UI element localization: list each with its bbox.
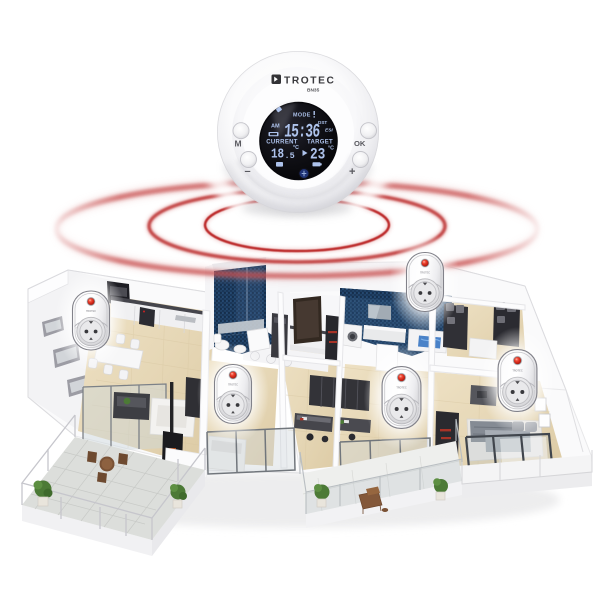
svg-text:OK: OK bbox=[354, 139, 366, 148]
svg-text:M: M bbox=[235, 139, 242, 149]
svg-text:BN35: BN35 bbox=[307, 88, 320, 94]
svg-text:ESI: ESI bbox=[325, 128, 333, 134]
svg-text:.5: .5 bbox=[285, 151, 295, 161]
svg-text:TARGET: TARGET bbox=[307, 139, 333, 145]
svg-text:MODE: MODE bbox=[293, 113, 311, 119]
svg-text:°C: °C bbox=[293, 145, 299, 151]
svg-text:°C: °C bbox=[328, 146, 334, 152]
svg-text:23: 23 bbox=[310, 146, 325, 164]
svg-text:AM: AM bbox=[271, 124, 280, 130]
svg-text:18: 18 bbox=[271, 146, 284, 162]
svg-text:TROTEC: TROTEC bbox=[284, 76, 335, 87]
svg-text:+: + bbox=[349, 166, 355, 178]
svg-text:–: – bbox=[245, 166, 251, 178]
